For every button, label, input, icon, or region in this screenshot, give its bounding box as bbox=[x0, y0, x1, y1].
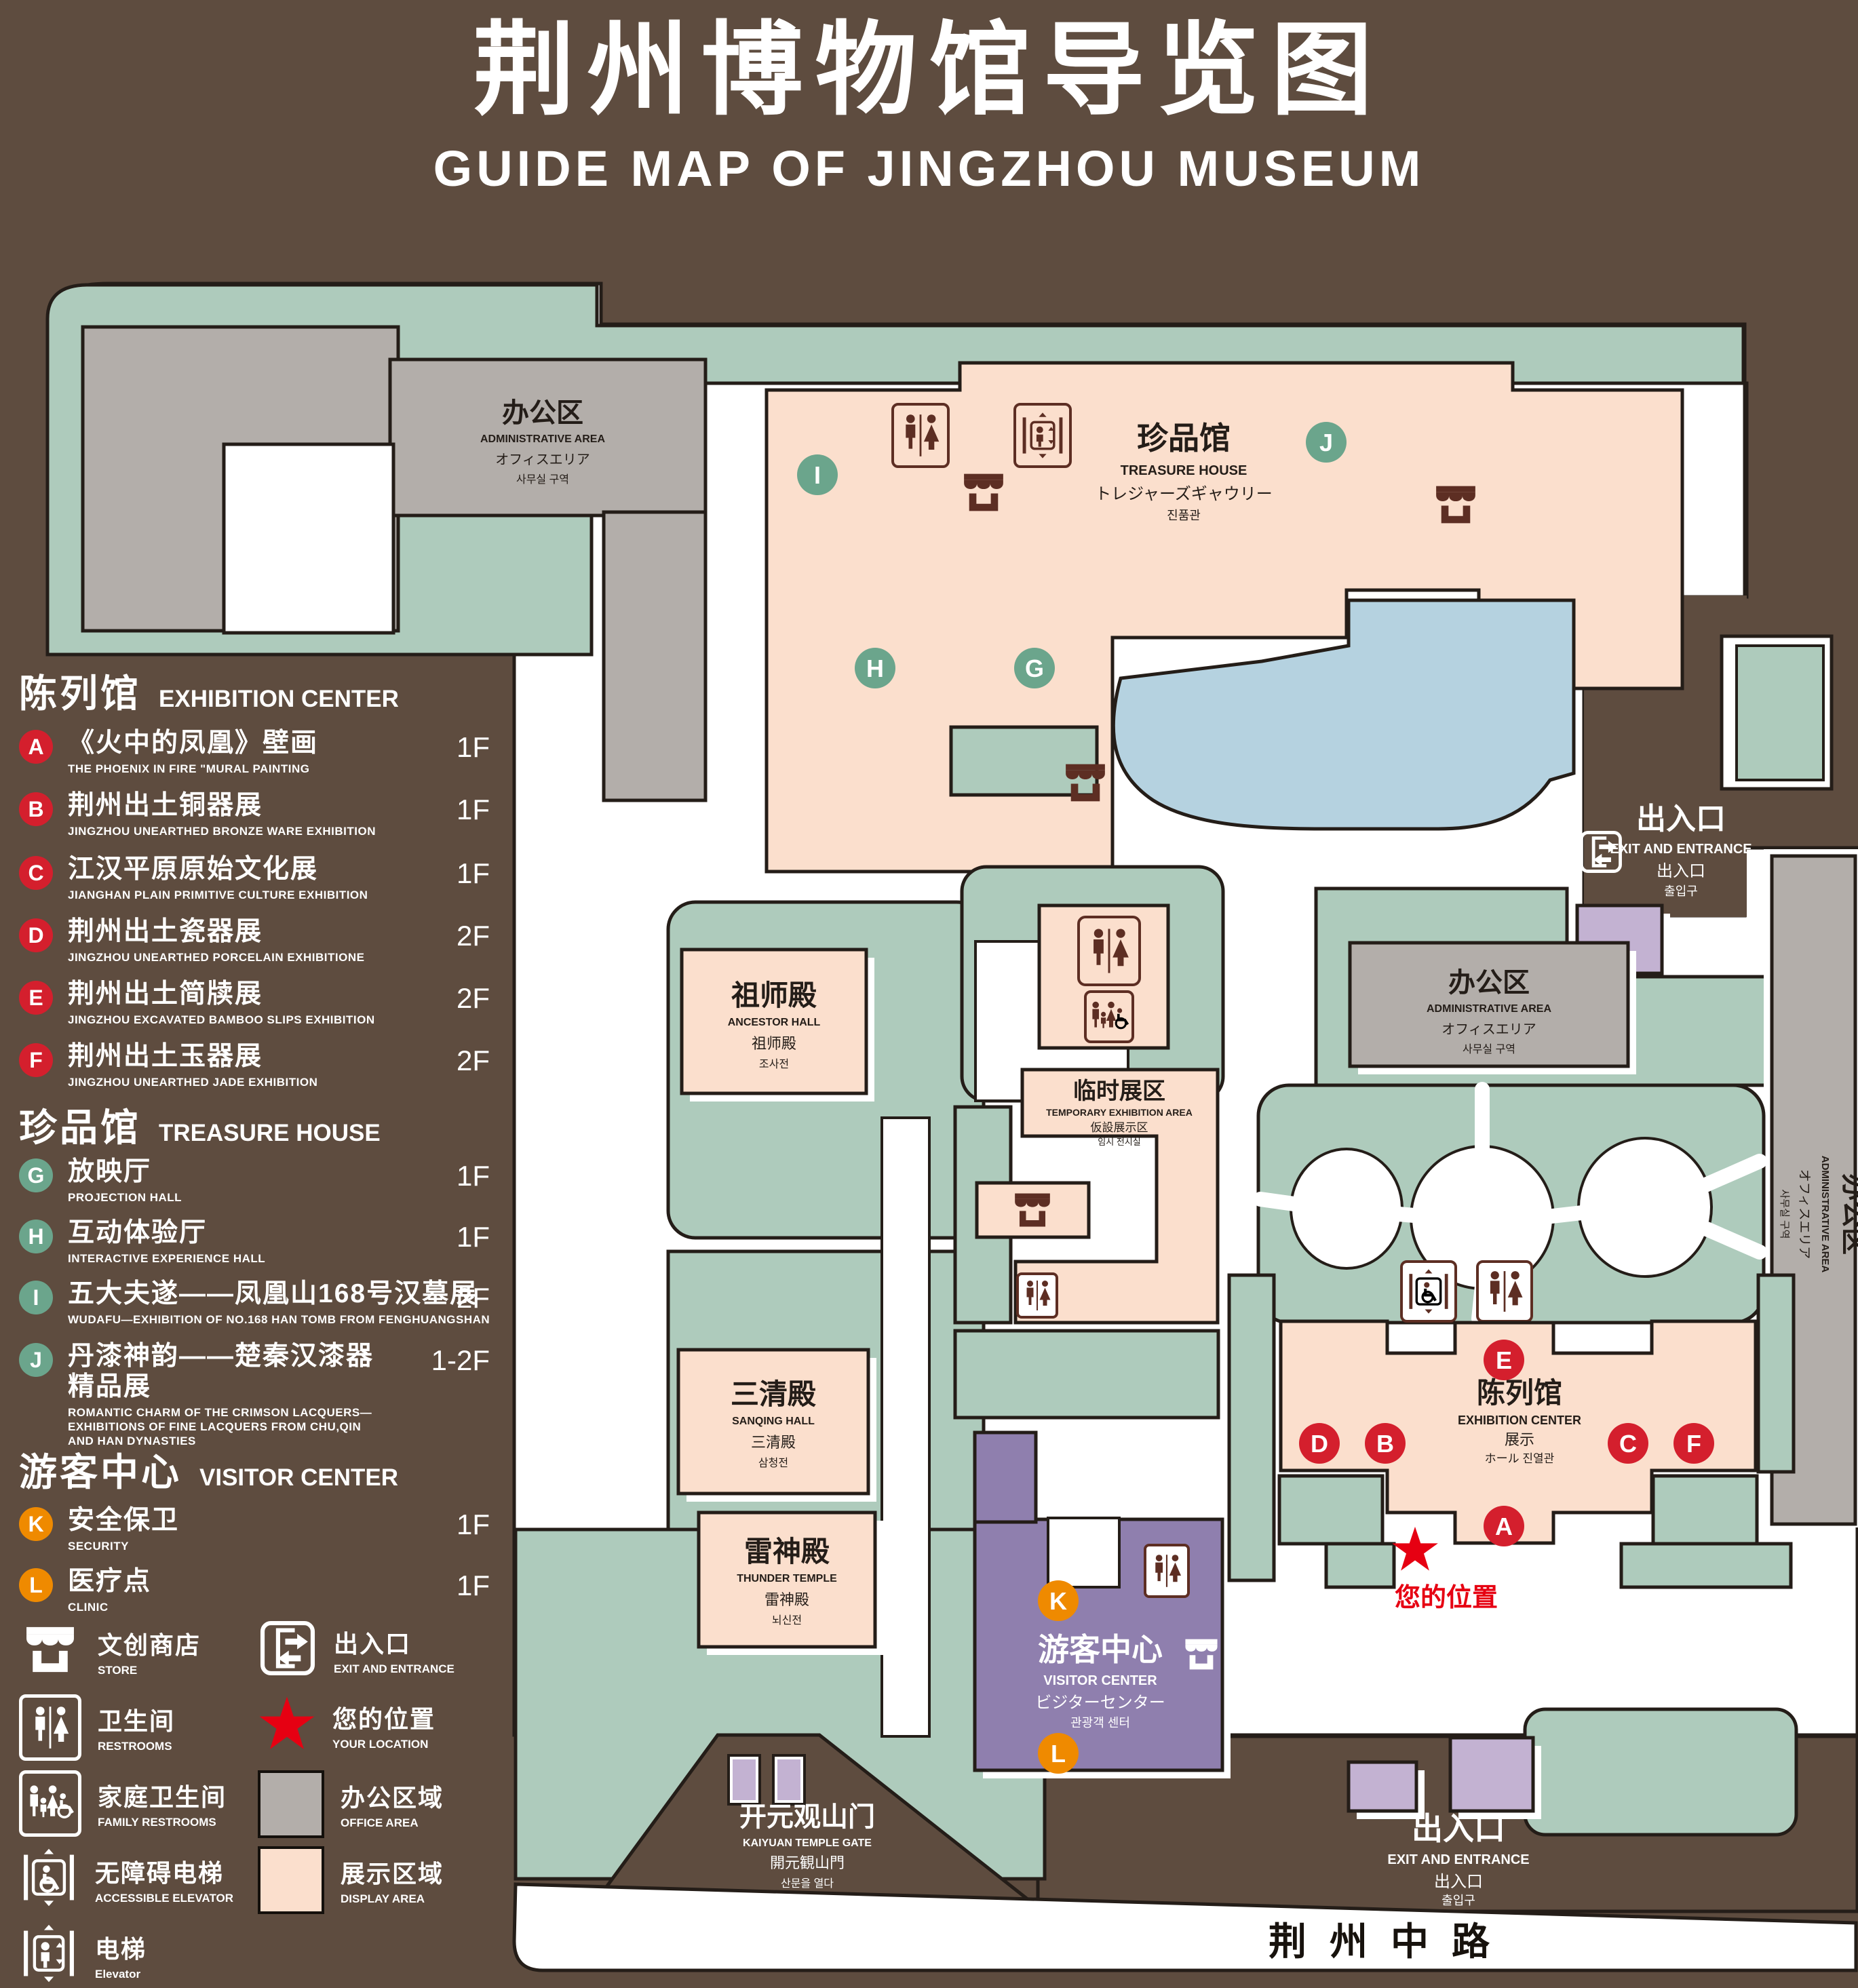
admin-e-en: ADMINISTRATIVE AREA bbox=[1819, 1156, 1831, 1273]
legend-location: 您的位置 YOUR LOCATION bbox=[258, 1694, 494, 1756]
legend-item-en: JINGZHOU EXCAVATED BAMBOO SLIPS EXHIBITI… bbox=[68, 1013, 375, 1027]
legend-item-en: JINGZHOU UNEARTHED PORCELAIN EXHIBITIONE bbox=[68, 950, 364, 964]
legend-item-E: E 荆州出土简牍展 JINGZHOU EXCAVATED BAMBOO SLIP… bbox=[19, 979, 494, 1027]
marker-E: E bbox=[1484, 1340, 1524, 1380]
marker-G: G bbox=[1014, 648, 1055, 688]
legend-family-zh: 家庭卫生间 bbox=[98, 1778, 227, 1813]
svg-text:A: A bbox=[1495, 1513, 1513, 1540]
visitor-ko: 관광객 센터 bbox=[1070, 1716, 1130, 1730]
legend-item-en: JIANGHAN PLAIN PRIMITIVE CULTURE EXHIBIT… bbox=[68, 888, 368, 902]
gate-ja: 開元観山門 bbox=[770, 1854, 845, 1871]
marker-C: C bbox=[1608, 1423, 1648, 1464]
legend-heading-treasure: 珍品馆 TREASURE HOUSE bbox=[19, 1097, 494, 1152]
legend-exit-en: EXIT AND ENTRANCE bbox=[334, 1662, 454, 1676]
legend-heading-exhibition: 陈列馆 EXHIBITION CENTER bbox=[19, 663, 494, 718]
marker-L: L bbox=[1038, 1733, 1079, 1774]
south-exit-ja: 出入口 bbox=[1434, 1873, 1483, 1891]
legend-marker-D: D bbox=[19, 918, 53, 952]
legend-item-en: THE PHOENIX IN FIRE "MURAL PAINTING bbox=[68, 762, 318, 776]
admin-c-zh: 办公区 bbox=[1448, 968, 1530, 998]
svg-text:K: K bbox=[1049, 1587, 1067, 1615]
legend-heading-en: EXHIBITION CENTER bbox=[159, 686, 399, 713]
ancestor-ja: 祖师殿 bbox=[752, 1035, 796, 1052]
legend-marker-E: E bbox=[19, 981, 53, 1015]
admin-building-central: 办公区 ADMINISTRATIVE AREA オフィスエリア 사무실 구역 bbox=[1350, 943, 1636, 1074]
temp-ja: 仮設展示区 bbox=[1091, 1121, 1148, 1134]
legend-office-en: OFFICE AREA bbox=[341, 1816, 444, 1830]
legend-panel: 陈列馆 EXHIBITION CENTER A 《火中的凤凰》壁画 THE PH… bbox=[19, 663, 494, 1966]
admin-nw-label-zh: 办公区 bbox=[502, 398, 583, 428]
gate-pillar bbox=[777, 1759, 800, 1800]
legend-item-en: WUDAFU—EXHIBITION OF NO.168 HAN TOMB FRO… bbox=[68, 1312, 490, 1327]
marker-B: B bbox=[1365, 1423, 1406, 1464]
treasure-label-ko: 진품관 bbox=[1167, 509, 1201, 522]
south-exit-en: EXIT AND ENTRANCE bbox=[1387, 1852, 1529, 1867]
legend-marker-B: B bbox=[19, 792, 53, 826]
legend-item-C: C 江汉平原原始文化展 JIANGHAN PLAIN PRIMITIVE CUL… bbox=[19, 855, 494, 902]
east-exit-en: EXIT AND ENTRANCE bbox=[1610, 842, 1751, 857]
gate-en: KAIYUAN TEMPLE GATE bbox=[743, 1837, 872, 1849]
office-area-swatch bbox=[258, 1770, 324, 1838]
legend-marker-C: C bbox=[19, 856, 53, 890]
legend-heading-zh: 珍品馆 bbox=[19, 1097, 141, 1152]
thunder-zh: 雷神殿 bbox=[744, 1536, 830, 1567]
legend-item-zh: 荆州出土铜器展 bbox=[68, 791, 376, 821]
legend-location-en: YOUR LOCATION bbox=[332, 1738, 436, 1751]
east-exit-ko: 출입구 bbox=[1664, 884, 1698, 898]
ancestor-hall: 祖师殿 ANCESTOR HALL 祖师殿 조사전 bbox=[682, 950, 874, 1102]
marker-D: D bbox=[1299, 1423, 1340, 1464]
south-exit-zh: 出入口 bbox=[1412, 1811, 1505, 1846]
admin-c-ja: オフィスエリア bbox=[1441, 1022, 1536, 1037]
legend-item-zh: 丹漆神韵——楚秦汉漆器精品展 bbox=[68, 1342, 387, 1403]
legend-heading-zh: 游客中心 bbox=[19, 1442, 182, 1497]
legend-restroom-en: RESTROOMS bbox=[98, 1740, 175, 1753]
legend-marker-H: H bbox=[19, 1220, 53, 1253]
legend-item-zh: 互动体验厅 bbox=[68, 1218, 265, 1249]
admin-e-ja: オフィスエリア bbox=[1797, 1169, 1811, 1260]
exhibition-label-ko: ホール 진열관 bbox=[1485, 1452, 1555, 1465]
gate-ko: 산문을 열다 bbox=[781, 1877, 834, 1890]
svg-text:J: J bbox=[1319, 429, 1333, 456]
thunder-temple: 雷神殿 THUNDER TEMPLE 雷神殿 뇌신전 bbox=[699, 1513, 883, 1655]
legend-marker-L: L bbox=[19, 1568, 53, 1602]
legend-floor: 2F bbox=[457, 1045, 490, 1077]
legend-marker-F: F bbox=[19, 1043, 53, 1077]
admin-nw-label-ko: 사무실 구역 bbox=[516, 473, 569, 486]
legend-floor: 1F bbox=[457, 1160, 490, 1192]
legend-floor: 1F bbox=[457, 794, 490, 826]
exhibition-label-en: EXHIBITION CENTER bbox=[1458, 1414, 1581, 1427]
marker-J: J bbox=[1306, 422, 1347, 463]
legend-restroom-zh: 卫生间 bbox=[98, 1702, 175, 1737]
legend-heading-zh: 陈列馆 bbox=[19, 663, 141, 718]
east-exit-zh: 出入口 bbox=[1636, 802, 1726, 836]
lawn-southeast bbox=[1525, 1709, 1796, 1835]
legend-item-zh: 荆州出土简牍展 bbox=[68, 979, 375, 1010]
legend-heading-en: VISITOR CENTER bbox=[199, 1464, 398, 1492]
legend-location-zh: 您的位置 bbox=[332, 1700, 436, 1735]
treasure-label-zh: 珍品馆 bbox=[1137, 421, 1231, 456]
marker-K: K bbox=[1038, 1580, 1079, 1621]
legend-item-A: A 《火中的凤凰》壁画 THE PHOENIX IN FIRE "MURAL P… bbox=[19, 728, 494, 776]
svg-text:D: D bbox=[1311, 1430, 1328, 1458]
legend-marker-I: I bbox=[19, 1281, 53, 1314]
south-exit-ko: 출입구 bbox=[1441, 1894, 1475, 1907]
legend-item-zh: 荆州出土瓷器展 bbox=[68, 917, 364, 948]
lawn-visitor-north bbox=[955, 1331, 1218, 1418]
legend-item-zh: 《火中的凤凰》壁画 bbox=[68, 728, 318, 759]
legend-item-G: G 放映厅 PROJECTION HALL 1F bbox=[19, 1157, 494, 1205]
admin-c-ko: 사무실 구역 bbox=[1463, 1043, 1515, 1055]
thunder-ko: 뇌신전 bbox=[772, 1614, 802, 1626]
legend-item-F: F 荆州出土玉器展 JINGZHOU UNEARTHED JADE EXHIBI… bbox=[19, 1042, 494, 1089]
sanqing-en: SANQING HALL bbox=[732, 1416, 815, 1427]
thunder-en: THUNDER TEMPLE bbox=[737, 1573, 837, 1584]
display-area-swatch bbox=[258, 1846, 324, 1914]
svg-text:F: F bbox=[1686, 1430, 1701, 1458]
legend-item-en: CLINIC bbox=[68, 1600, 151, 1614]
legend-display-area: 展示区域 DISPLAY AREA bbox=[258, 1846, 494, 1914]
legend-floor: 1F bbox=[457, 1570, 490, 1602]
svg-text:I: I bbox=[814, 461, 821, 489]
legend-item-B: B 荆州出土铜器展 JINGZHOU UNEARTHED BRONZE WARE… bbox=[19, 791, 494, 838]
sanqing-ja: 三清殿 bbox=[751, 1434, 796, 1451]
treasure-label-en: TREASURE HOUSE bbox=[1121, 463, 1247, 478]
legend-marker-G: G bbox=[19, 1158, 53, 1192]
legend-elevator: 电梯 Elevator bbox=[19, 1922, 494, 1988]
legend-item-K: K 安全保卫 SECURITY 1F bbox=[19, 1506, 494, 1553]
legend-store-en: STORE bbox=[98, 1664, 201, 1677]
legend-floor: 1F bbox=[457, 1508, 490, 1541]
legend-item-en: JINGZHOU UNEARTHED BRONZE WARE EXHIBITIO… bbox=[68, 824, 376, 838]
admin-e-ko: 사무실 구역 bbox=[1779, 1189, 1790, 1239]
temp-zh: 临时展区 bbox=[1073, 1078, 1165, 1104]
legend-floor: 2F bbox=[457, 1282, 490, 1314]
legend-item-J: J 丹漆神韵——楚秦汉漆器精品展 ROMANTIC CHARM OF THE C… bbox=[19, 1342, 494, 1448]
legend-item-D: D 荆州出土瓷器展 JINGZHOU UNEARTHED PORCELAIN E… bbox=[19, 917, 494, 964]
legend-item-zh: 江汉平原原始文化展 bbox=[68, 855, 368, 885]
svg-text:B: B bbox=[1376, 1430, 1394, 1458]
page-title: 荆州博物馆导览图 bbox=[0, 19, 1858, 121]
legend-office-zh: 办公区域 bbox=[341, 1778, 444, 1814]
legend-family-en: FAMILY RESTROOMS bbox=[98, 1816, 227, 1829]
sanqing-zh: 三清殿 bbox=[731, 1378, 816, 1410]
admin-e-zh: 办公区 bbox=[1839, 1173, 1858, 1255]
legend-accessible-en: ACCESSIBLE ELEVATOR bbox=[95, 1892, 233, 1905]
svg-text:H: H bbox=[866, 655, 884, 682]
temp-ko: 임시 전시실 bbox=[1098, 1137, 1140, 1147]
legend-item-H: H 互动体验厅 INTERACTIVE EXPERIENCE HALL 1F bbox=[19, 1218, 494, 1266]
legend-accessible-zh: 无障碍电梯 bbox=[95, 1854, 233, 1889]
ancestor-zh: 祖师殿 bbox=[731, 979, 817, 1011]
legend-floor: 1F bbox=[457, 731, 490, 764]
ancestor-ko: 조사전 bbox=[759, 1058, 789, 1070]
legend-item-I: I 五大夫遂——凤凰山168号汉墓展 WUDAFU—EXHIBITION OF … bbox=[19, 1279, 494, 1327]
legend-display-en: DISPLAY AREA bbox=[341, 1892, 444, 1906]
legend-marker-J: J bbox=[19, 1343, 53, 1377]
svg-text:C: C bbox=[1619, 1430, 1637, 1458]
visitor-en: VISITOR CENTER bbox=[1043, 1673, 1157, 1688]
legend-elevator-en: Elevator bbox=[95, 1968, 147, 1981]
east-exit-ja: 出入口 bbox=[1657, 862, 1705, 880]
thunder-ja: 雷神殿 bbox=[765, 1591, 809, 1608]
svg-text:L: L bbox=[1051, 1740, 1066, 1768]
legend-elevator-zh: 电梯 bbox=[95, 1930, 147, 1965]
legend-item-zh: 安全保卫 bbox=[68, 1506, 179, 1536]
legend-marker-A: A bbox=[19, 730, 53, 764]
marker-H: H bbox=[855, 648, 895, 688]
sanqing-hall: 三清殿 SANQING HALL 三清殿 삼청전 bbox=[678, 1350, 876, 1502]
legend-display-zh: 展示区域 bbox=[341, 1854, 444, 1890]
exit-building bbox=[1349, 1762, 1416, 1811]
exhibition-label-ja: 展示 bbox=[1505, 1431, 1534, 1448]
legend-floor: 1-2F bbox=[431, 1344, 490, 1377]
temp-en: TEMPORARY EXHIBITION AREA bbox=[1046, 1107, 1193, 1118]
legend-heading-en: TREASURE HOUSE bbox=[159, 1120, 381, 1147]
gate-pillar bbox=[733, 1759, 756, 1800]
legend-item-L: L 医疗点 CLINIC 1F bbox=[19, 1567, 494, 1614]
legend-exit: 出入口 EXIT AND ENTRANCE bbox=[258, 1618, 494, 1681]
legend-floor: 1F bbox=[457, 857, 490, 890]
your-location-label: 您的位置 bbox=[1395, 1584, 1498, 1612]
marker-F: F bbox=[1673, 1423, 1714, 1464]
legend-item-zh: 放映厅 bbox=[68, 1157, 182, 1188]
exhibition-label-zh: 陈列馆 bbox=[1477, 1377, 1562, 1409]
legend-floor: 2F bbox=[457, 982, 490, 1015]
marker-I: I bbox=[797, 454, 838, 495]
admin-nw-label-ja: オフィスエリア bbox=[495, 452, 590, 467]
legend-floor: 1F bbox=[457, 1221, 490, 1253]
legend-item-en: PROJECTION HALL bbox=[68, 1190, 182, 1205]
legend-item-en: INTERACTIVE EXPERIENCE HALL bbox=[68, 1251, 265, 1266]
road-label: 荆州中路 bbox=[1269, 1920, 1513, 1963]
treasure-label-ja: トレジャーズギャウリー bbox=[1095, 485, 1273, 503]
svg-text:E: E bbox=[1496, 1346, 1512, 1374]
sanqing-ko: 삼청전 bbox=[758, 1457, 788, 1469]
visitor-zh: 游客中心 bbox=[1038, 1632, 1163, 1667]
admin-c-en: ADMINISTRATIVE AREA bbox=[1427, 1003, 1551, 1015]
legend-item-en: JINGZHOU UNEARTHED JADE EXHIBITION bbox=[68, 1075, 317, 1089]
legend-floor: 2F bbox=[457, 920, 490, 952]
exit-building bbox=[1450, 1738, 1533, 1811]
legend-heading-visitor: 游客中心 VISITOR CENTER bbox=[19, 1442, 494, 1497]
marker-A: A bbox=[1484, 1506, 1524, 1546]
legend-item-zh: 医疗点 bbox=[68, 1567, 151, 1597]
ancestor-en: ANCESTOR HALL bbox=[728, 1017, 821, 1028]
legend-item-zh: 荆州出土玉器展 bbox=[68, 1042, 317, 1072]
gate-zh: 开元观山门 bbox=[739, 1802, 875, 1832]
legend-item-zh: 五大夫遂——凤凰山168号汉墓展 bbox=[68, 1279, 490, 1310]
legend-marker-K: K bbox=[19, 1507, 53, 1541]
page-subtitle: GUIDE MAP OF JINGZHOU MUSEUM bbox=[0, 140, 1858, 197]
restroom-building bbox=[962, 867, 1223, 1101]
svg-text:G: G bbox=[1025, 655, 1044, 682]
legend-exit-zh: 出入口 bbox=[334, 1624, 454, 1660]
legend-store-zh: 文创商店 bbox=[98, 1626, 201, 1661]
path-channel bbox=[882, 1118, 929, 1736]
legend-office-area: 办公区域 OFFICE AREA bbox=[258, 1770, 494, 1838]
northeast-lawn bbox=[1737, 646, 1823, 780]
legend-item-en: SECURITY bbox=[68, 1539, 179, 1553]
admin-nw-label-en: ADMINISTRATIVE AREA bbox=[480, 433, 605, 445]
visitor-ja: ビジターセンター bbox=[1035, 1694, 1165, 1712]
